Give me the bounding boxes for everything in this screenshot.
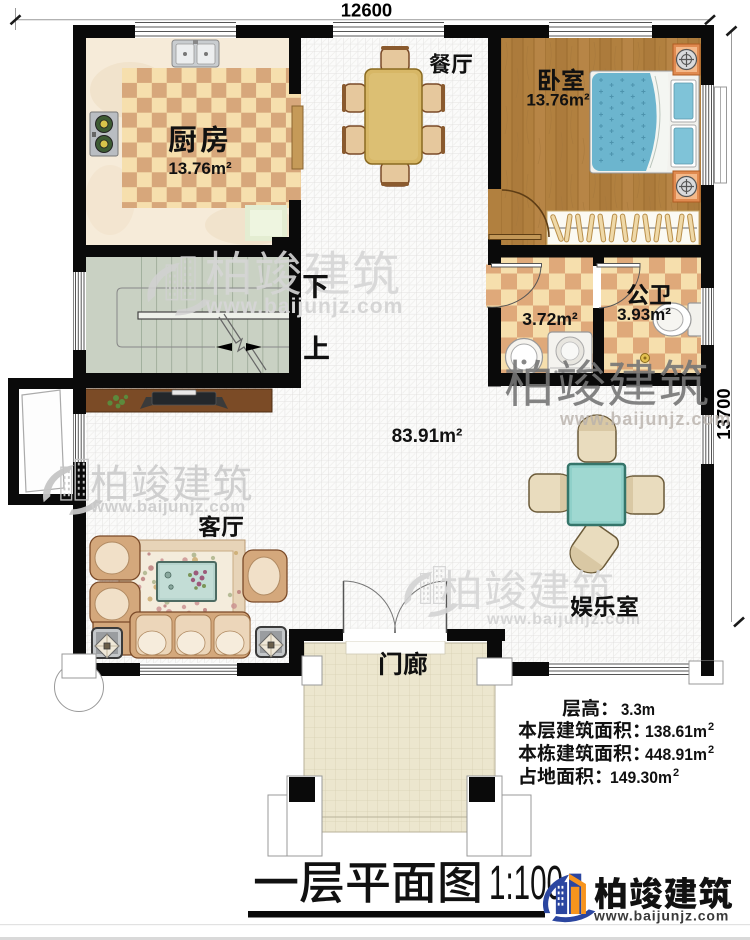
svg-text:2: 2: [708, 721, 714, 733]
svg-text:3.93m²: 3.93m²: [617, 305, 671, 324]
svg-text:2: 2: [673, 767, 679, 779]
svg-text:www.baijunjz.com: www.baijunjz.com: [205, 295, 403, 318]
svg-text:83.91m²: 83.91m²: [392, 426, 463, 447]
svg-text:448.91m: 448.91m: [645, 745, 707, 764]
svg-text:www.baijunjz.com: www.baijunjz.com: [90, 497, 246, 516]
svg-text:149.30m: 149.30m: [610, 768, 672, 787]
svg-text:www.baijunjz.com: www.baijunjz.com: [486, 611, 641, 628]
svg-text:3.72m²: 3.72m²: [522, 309, 578, 329]
svg-text:12600: 12600: [341, 0, 392, 21]
svg-text:13.76m²: 13.76m²: [168, 159, 232, 178]
svg-text:13.76m²: 13.76m²: [526, 91, 590, 110]
svg-text:www.baijunjz.com: www.baijunjz.com: [593, 908, 729, 924]
svg-text:www.baijunjz.com: www.baijunjz.com: [559, 409, 731, 429]
svg-text:1:100: 1:100: [489, 857, 563, 910]
svg-text:138.61m: 138.61m: [645, 722, 707, 741]
svg-text:2: 2: [708, 744, 714, 756]
svg-text:3.3m: 3.3m: [621, 700, 655, 719]
